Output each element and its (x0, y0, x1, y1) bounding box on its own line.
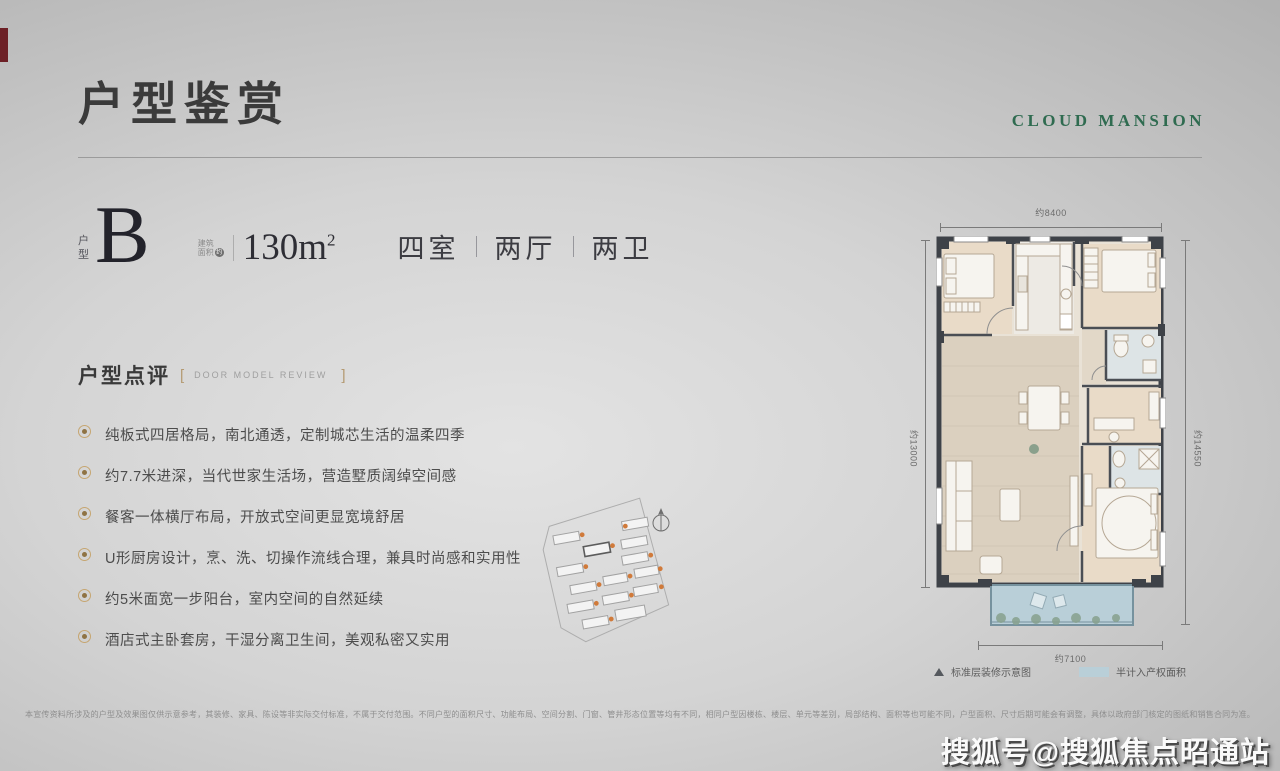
page: 户型鉴赏 CLOUD MANSION 户型 B 建筑 面积 约 130m2 四室… (0, 0, 1280, 771)
unit-summary: 户型 B 建筑 面积 约 130m2 四室 两厅 两卫 (78, 196, 653, 274)
review-point: 纯板式四居格局，南北通透，定制城芯生活的温柔四季 (78, 424, 558, 439)
hallway (1082, 330, 1106, 384)
rooms-bedrooms: 四室 (397, 227, 459, 266)
area-value: 130m2 (243, 226, 336, 269)
area-mini-line1: 建筑 (198, 239, 214, 248)
review-point: 餐客一体横厅布局，开放式空间更显宽境舒居 (78, 506, 558, 521)
dim-line-bottom (978, 645, 1163, 646)
compass-icon (648, 506, 674, 536)
bullet-dot-icon (78, 630, 91, 643)
dim-line-left (925, 240, 926, 588)
review-heading-row: 户型点评 [ DOOR MODEL REVIEW ] (78, 360, 558, 390)
dim-label-right: 约14550 (1192, 427, 1205, 471)
watermark-text: 搜狐号@搜狐焦点昭通站 (941, 729, 1270, 771)
review-points-list: 纯板式四居格局，南北通透，定制城芯生活的温柔四季 约7.7米进深，当代世家生活场… (78, 424, 558, 644)
half-area-swatch-icon (1079, 667, 1109, 677)
area-mini-label: 建筑 面积 约 (198, 239, 224, 257)
unit-area: 建筑 面积 约 130m2 (198, 226, 336, 269)
review-heading: 户型点评 (78, 360, 170, 390)
rooms-bathrooms: 两卫 (591, 227, 653, 266)
review-point: 约5米面宽一步阳台，室内空间的自然延续 (78, 588, 558, 603)
dim-label-left: 约13000 (908, 427, 921, 471)
area-mini-line2: 面积 (198, 248, 214, 257)
bullet-dot-icon (78, 548, 91, 561)
dim-line-right (1185, 240, 1186, 625)
review-point: 酒店式主卧套房，干湿分离卫生间，美观私密又实用 (78, 629, 558, 644)
review-point: 约7.7米进深，当代世家生活场，营造墅质阔绰空间感 (78, 465, 558, 480)
approx-circle-badge: 约 (215, 248, 224, 257)
rooms-divider (476, 236, 477, 257)
dim-line-top (940, 227, 1162, 228)
left-edge-red-mark (0, 28, 8, 62)
disclaimer-text: 本宣传资料所涉及的户型及效果图仅供示意参考，其装修、家具、陈设等非实际交付标准，… (0, 709, 1280, 720)
rooms-livingrooms: 两厅 (494, 227, 556, 266)
bullet-dot-icon (78, 466, 91, 479)
plan-legend: 标准层装修示意图 半计入产权面积 (934, 664, 1186, 679)
review-point: U形厨房设计，烹、洗、切操作流线合理，兼具时尚感和实用性 (78, 547, 558, 562)
balcony-half-area (991, 585, 1133, 625)
dim-label-top: 约8400 (940, 206, 1162, 219)
floor-plan (936, 236, 1166, 632)
review-section: 户型点评 [ DOOR MODEL REVIEW ] 纯板式四居格局，南北通透，… (78, 360, 558, 670)
unit-type-value: B (95, 196, 150, 274)
bullet-dot-icon (78, 507, 91, 520)
bracket-close: ] (341, 367, 345, 384)
rooms-divider (573, 236, 574, 257)
bullet-dot-icon (78, 425, 91, 438)
unit-type-label: 户型 (78, 235, 91, 263)
header-divider (78, 157, 1202, 158)
bracket-open: [ (180, 367, 184, 384)
legend-half-area: 半计入产权面积 (1079, 664, 1186, 679)
page-title: 户型鉴赏 (78, 68, 290, 134)
unit-rooms: 四室 两厅 两卫 (397, 227, 653, 266)
brand-logo-text: CLOUD MANSION (1012, 111, 1205, 131)
legend-standard-layer: 标准层装修示意图 (934, 664, 1031, 679)
bullet-dot-icon (78, 589, 91, 602)
area-divider (233, 235, 234, 261)
review-heading-en: DOOR MODEL REVIEW (194, 370, 327, 380)
triangle-icon (934, 668, 944, 676)
